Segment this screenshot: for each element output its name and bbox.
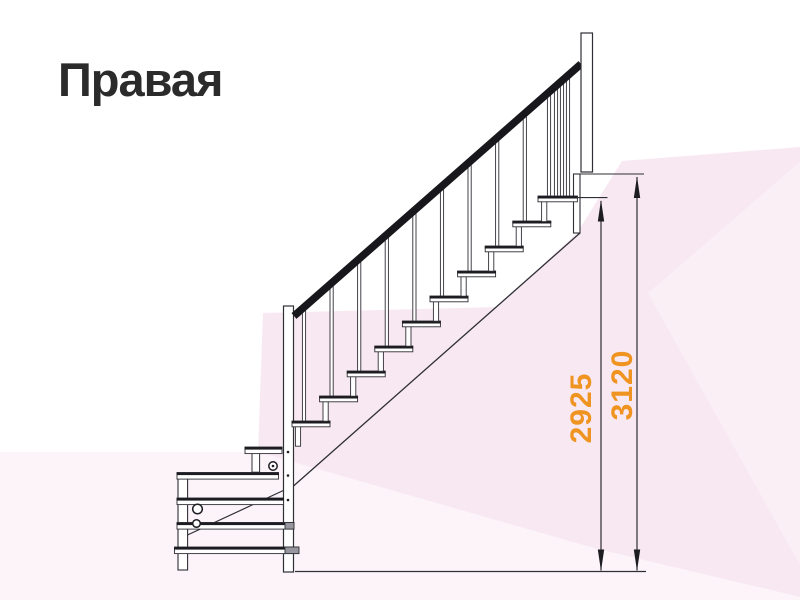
riser xyxy=(378,352,383,372)
tread-cap xyxy=(285,547,299,554)
baluster xyxy=(330,282,333,399)
baluster xyxy=(566,76,569,197)
landing-fascia xyxy=(574,174,581,233)
riser xyxy=(295,427,300,447)
riser xyxy=(542,202,547,222)
riser xyxy=(433,302,438,322)
riser xyxy=(489,252,494,272)
riser xyxy=(323,402,328,422)
tread-top-edge xyxy=(538,196,578,199)
baluster xyxy=(496,138,499,249)
tread-top-edge xyxy=(177,473,279,476)
tread-top-edge xyxy=(245,447,283,450)
baluster xyxy=(468,162,471,274)
tread-top-edge xyxy=(174,547,299,550)
screw-hole-icon xyxy=(193,504,203,514)
background-facets xyxy=(0,147,800,600)
dimension-label-3120: 3120 xyxy=(606,350,640,421)
screw-center-icon xyxy=(272,465,275,468)
fastener-dot-icon xyxy=(287,499,290,502)
fastener-dot-icon xyxy=(287,474,290,477)
baluster xyxy=(547,93,550,197)
newel-post xyxy=(284,306,294,572)
riser xyxy=(516,227,521,247)
baluster xyxy=(554,87,557,197)
baluster xyxy=(523,114,526,224)
baluster xyxy=(440,186,443,299)
winder-support xyxy=(252,453,260,473)
baluster xyxy=(560,82,563,197)
diagram-title: Правая xyxy=(58,52,222,107)
riser xyxy=(461,277,466,297)
baluster xyxy=(385,234,388,349)
diagram-canvas: Правая 2925 3120 xyxy=(0,0,800,600)
baluster xyxy=(413,210,416,324)
top-post xyxy=(581,33,593,172)
tread-cap xyxy=(285,523,294,530)
baluster xyxy=(358,258,361,374)
fastener-dot-icon xyxy=(287,451,290,454)
baluster xyxy=(302,306,305,424)
riser xyxy=(351,377,356,397)
dimension-label-2925: 2925 xyxy=(565,373,599,444)
riser xyxy=(406,327,411,347)
tread-top-edge xyxy=(177,498,284,501)
screw-hole-icon xyxy=(193,520,201,528)
